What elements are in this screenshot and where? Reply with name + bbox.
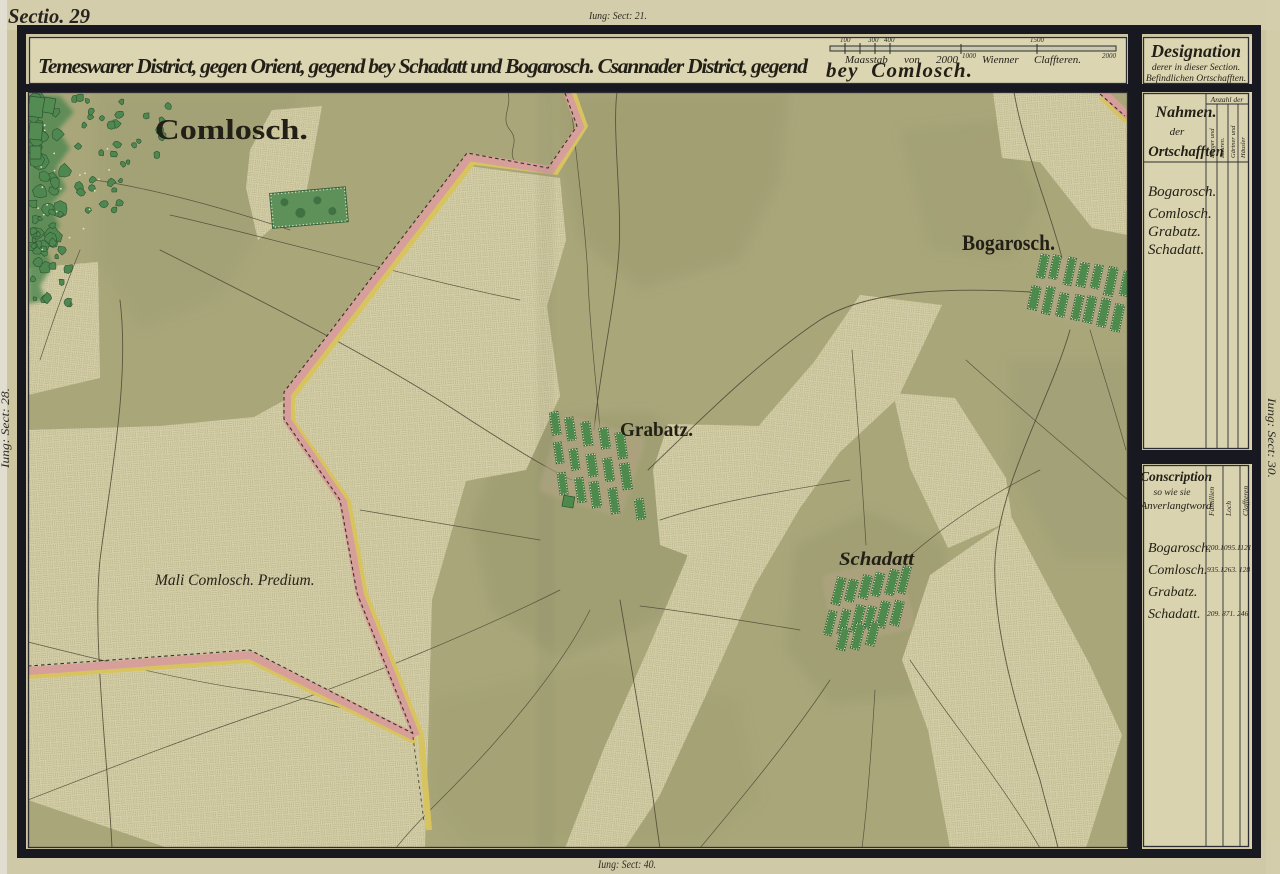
svg-text:Schadatt: Schadatt (839, 549, 915, 570)
svg-text:Iung: Sect: 21.: Iung: Sect: 21. (588, 10, 647, 22)
svg-text:Grabatz.: Grabatz. (1148, 585, 1197, 600)
svg-text:Schadatt.: Schadatt. (1148, 242, 1204, 258)
svg-text:Anverlangtword: Anverlangtword (1139, 500, 1212, 512)
svg-text:Bogarosch.: Bogarosch. (962, 230, 1055, 255)
svg-text:Maasstab: Maasstab (844, 54, 888, 66)
svg-text:Nahmen.: Nahmen. (1155, 104, 1217, 121)
svg-text:Iung: Sect: 30.: Iung: Sect: 30. (1265, 397, 1279, 478)
svg-text:Schadatt.: Schadatt. (1148, 607, 1201, 622)
svg-text:1500: 1500 (1030, 36, 1045, 44)
svg-text:Temeswarer District, gegen Ori: Temeswarer District, gegen Orient, gegen… (38, 54, 809, 78)
svg-text:Mali Comlosch. Predium.: Mali Comlosch. Predium. (154, 572, 315, 589)
svg-text:Anzahl der: Anzahl der (1210, 95, 1244, 104)
svg-text:Iung: Sect: 40.: Iung: Sect: 40. (597, 859, 656, 871)
svg-text:Conscription: Conscription (1140, 469, 1212, 484)
svg-text:100: 100 (840, 36, 851, 44)
svg-text:Häusler: Häusler (1240, 137, 1247, 159)
svg-text:Claffteren.: Claffteren. (1034, 54, 1081, 66)
svg-text:der: der (1170, 126, 1185, 138)
svg-text:Designation: Designation (1150, 41, 1241, 61)
svg-text:Befindlichen Ortschafften.: Befindlichen Ortschafften. (1146, 73, 1246, 84)
svg-text:Gärtner und: Gärtner und (1230, 125, 1237, 158)
svg-text:Claffteren: Claffteren (1241, 486, 1250, 516)
svg-text:200.1095.1121: 200.1095.1121 (1207, 543, 1251, 552)
svg-text:1000: 1000 (962, 52, 977, 60)
svg-text:400: 400 (884, 36, 895, 44)
svg-text:Wienner: Wienner (982, 54, 1019, 66)
svg-text:209. 871. 246: 209. 871. 246 (1207, 609, 1249, 618)
svg-text:Bogarosch.: Bogarosch. (1148, 184, 1216, 200)
svg-text:2000: 2000 (1102, 52, 1117, 60)
svg-text:Bogarosch.: Bogarosch. (1148, 541, 1212, 556)
svg-text:Grabatz.: Grabatz. (1148, 224, 1201, 240)
svg-text:Comlosch.: Comlosch. (1148, 563, 1208, 578)
svg-text:Grabatz.: Grabatz. (620, 419, 693, 441)
svg-text:Sectio. 29: Sectio. 29 (8, 4, 90, 28)
svg-text:Comlosch.: Comlosch. (1148, 206, 1212, 222)
svg-text:Comlosch.: Comlosch. (155, 115, 308, 146)
svg-text:Burger und: Burger und (1209, 128, 1216, 158)
svg-text:von: von (904, 54, 920, 66)
svg-text:so wie sie: so wie sie (1154, 488, 1191, 498)
svg-text:Bauren.: Bauren. (1219, 137, 1226, 158)
svg-text:Iung: Sect: 28.: Iung: Sect: 28. (0, 388, 12, 469)
svg-text:935.1263. 128: 935.1263. 128 (1207, 565, 1250, 574)
svg-text:Loch: Loch (1224, 501, 1233, 517)
svg-text:derer in dieser Section.: derer in dieser Section. (1152, 63, 1240, 73)
svg-text:300: 300 (867, 36, 879, 44)
svg-text:Famillien: Famillien (1207, 487, 1216, 517)
svg-text:2000: 2000 (936, 54, 959, 66)
